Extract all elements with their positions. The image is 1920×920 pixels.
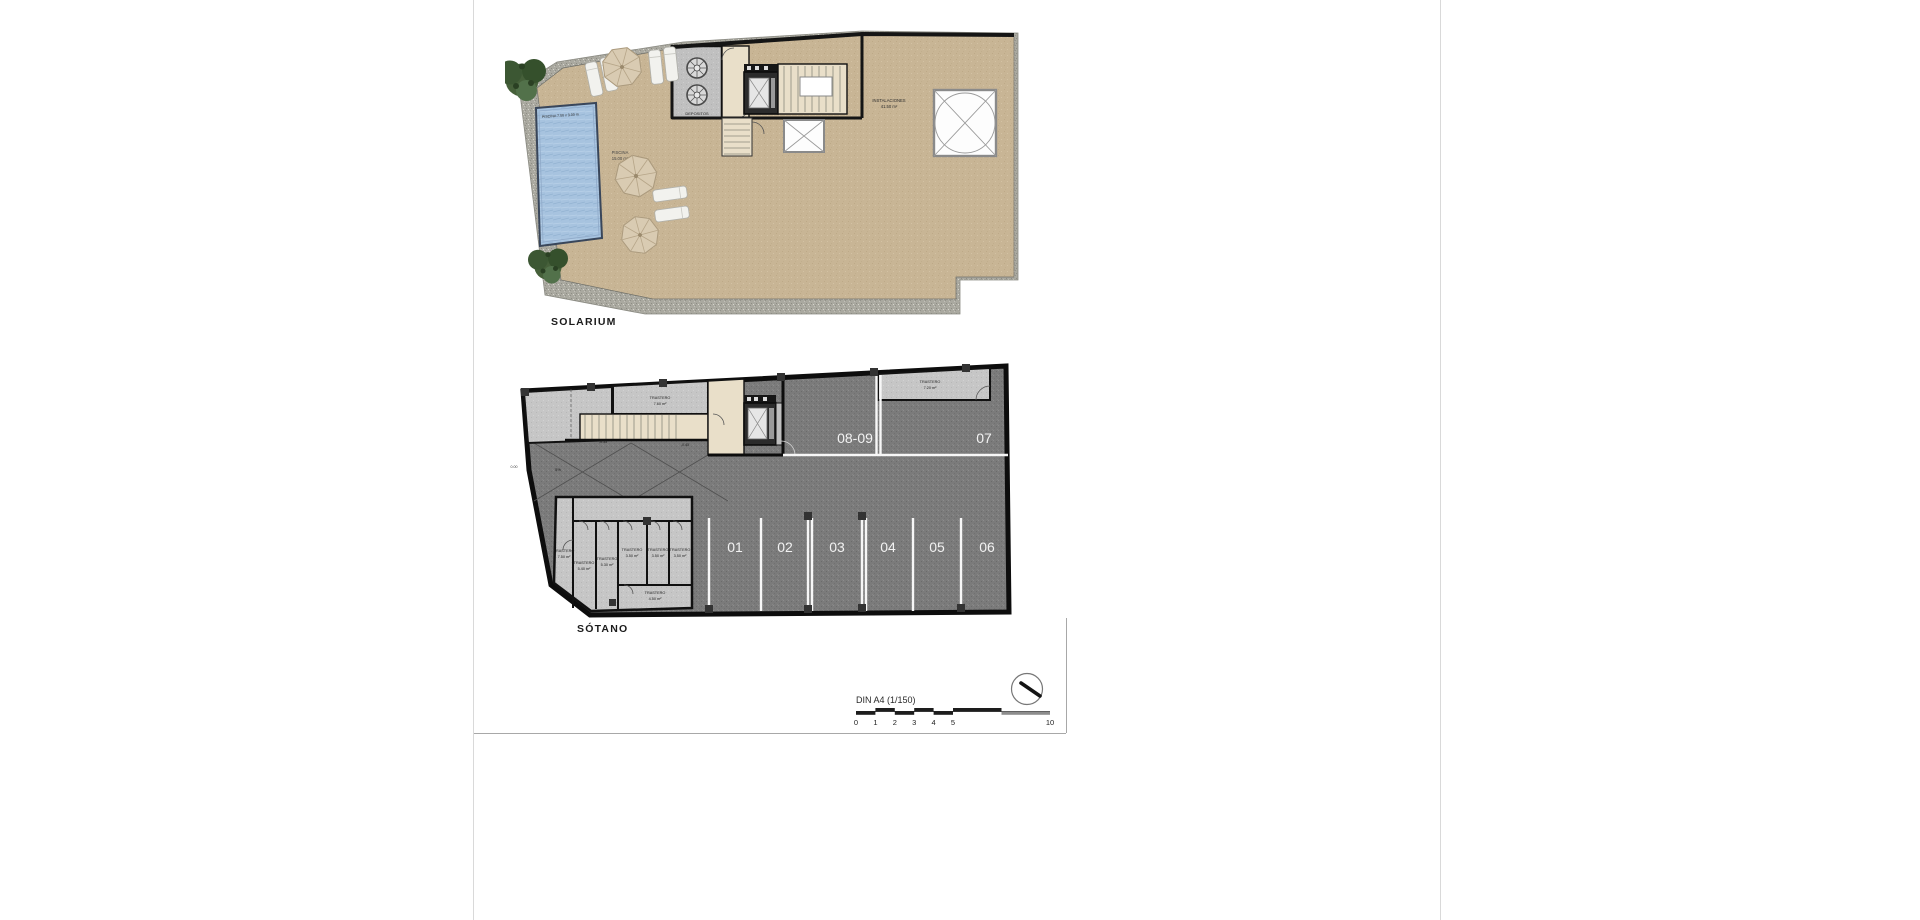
- storage-cluster: TRASTERO 7.50 m² TRASTERO 5.40 m² TRASTE…: [554, 497, 692, 611]
- scale-tick-1: 1: [873, 718, 877, 727]
- scale-tick-4: 4: [932, 718, 936, 727]
- scale-tick-0: 0: [854, 718, 858, 727]
- scale-tick-3: 3: [912, 718, 916, 727]
- svg-text:TRASTERO: TRASTERO: [574, 561, 595, 565]
- svg-text:TRASTERO: TRASTERO: [597, 557, 618, 561]
- sotano-plan: TRASTERO 7.60 m²: [505, 355, 1025, 665]
- level-045: -0.45: [681, 443, 689, 447]
- trastero-720-room: TRASTERO 7.20 m²: [878, 368, 990, 400]
- svg-text:TRASTERO: TRASTERO: [650, 396, 671, 400]
- parking-space-08-09: 08-09: [837, 430, 873, 446]
- svg-text:TRASTERO: TRASTERO: [554, 549, 575, 553]
- light-well-large: [934, 90, 996, 156]
- svg-text:7.60 m²: 7.60 m²: [654, 402, 668, 406]
- instalaciones-area: 41.50 m²: [881, 104, 898, 109]
- svg-text:TRASTERO: TRASTERO: [920, 380, 941, 384]
- svg-text:5.40 m²: 5.40 m²: [578, 567, 592, 571]
- light-well-small: [784, 120, 824, 152]
- level-000: 0.00: [511, 465, 518, 469]
- solarium-plan: PISCINA 7.00 x 3.00 m PISCINA 15.00 m² D…: [505, 22, 1025, 322]
- scale-bar: 0 1 2 3 4 5 10: [854, 705, 1064, 731]
- sheet-left-edge: [473, 0, 474, 920]
- parking-space-04: 04: [880, 539, 896, 555]
- pool-area-label: PISCINA: [612, 150, 629, 155]
- scale-tick-10: 10: [1046, 718, 1054, 727]
- sheet-right-edge: [1440, 0, 1441, 920]
- svg-text:TRASTERO: TRASTERO: [622, 548, 643, 552]
- floorplan-sheet: PISCINA 7.00 x 3.00 m PISCINA 15.00 m² D…: [0, 0, 1920, 920]
- staircase: [778, 64, 847, 114]
- svg-text:7.50 m²: 7.50 m²: [558, 555, 572, 559]
- elevator: [744, 64, 778, 114]
- basement-elevator: [744, 395, 783, 445]
- drawing-frame-right: [1066, 618, 1067, 733]
- solarium-plan-drawing: PISCINA 7.00 x 3.00 m PISCINA 15.00 m² D…: [505, 22, 1025, 322]
- parking-space-02: 02: [777, 539, 793, 555]
- depositos-label: DEPOSITOS: [685, 111, 709, 116]
- scale-label: DIN A4 (1/150): [856, 695, 916, 705]
- svg-text:7.20 m²: 7.20 m²: [924, 386, 938, 390]
- instalaciones-label: INSTALACIONES: [872, 98, 905, 103]
- sotano-title: SÓTANO: [577, 623, 628, 635]
- pool: PISCINA 7.00 x 3.00 m: [536, 103, 602, 246]
- parking-space-01: 01: [727, 539, 743, 555]
- parking-space-07: 07: [976, 430, 992, 446]
- svg-text:3.50 m²: 3.50 m²: [652, 554, 666, 558]
- solarium-title: SOLARIUM: [551, 316, 617, 328]
- level-035: -0.35: [599, 440, 607, 444]
- parking-space-03: 03: [829, 539, 845, 555]
- parking-space-06: 06: [979, 539, 995, 555]
- basement-stairs: [565, 414, 708, 440]
- north-arrow: [1009, 671, 1045, 707]
- svg-text:5.30 m²: 5.30 m²: [601, 563, 615, 567]
- svg-text:3.50 m²: 3.50 m²: [626, 554, 640, 558]
- svg-text:4.50 m²: 4.50 m²: [649, 597, 663, 601]
- drawing-frame-bottom: [474, 733, 1066, 734]
- svg-text:TRASTERO: TRASTERO: [670, 548, 691, 552]
- svg-text:3.50 m²: 3.50 m²: [674, 554, 688, 558]
- parking-space-05: 05: [929, 539, 945, 555]
- scale-tick-5: 5: [951, 718, 955, 727]
- scale-bar-drawing: 0 1 2 3 4 5 10: [854, 705, 1064, 731]
- svg-text:TRASTERO: TRASTERO: [645, 591, 666, 595]
- depositos-room: DEPOSITOS: [672, 46, 722, 118]
- ramp-slope: 5%: [555, 467, 561, 472]
- svg-text:TRASTERO: TRASTERO: [648, 548, 669, 552]
- scale-tick-2: 2: [893, 718, 897, 727]
- sotano-plan-drawing: TRASTERO 7.60 m²: [505, 355, 1025, 665]
- north-arrow-drawing: [1009, 671, 1045, 707]
